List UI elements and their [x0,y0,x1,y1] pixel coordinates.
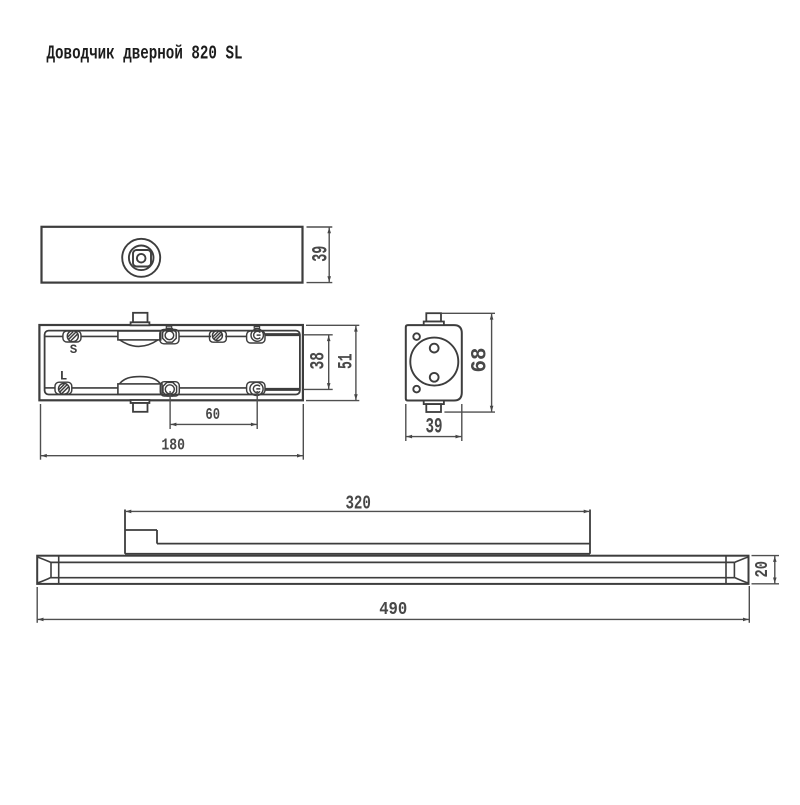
svg-text:180: 180 [161,435,185,454]
svg-text:39: 39 [309,246,334,262]
svg-text:320: 320 [345,492,371,514]
svg-text:490: 490 [379,600,407,620]
svg-text:60: 60 [205,405,220,424]
svg-text:20: 20 [753,561,773,578]
svg-text:68: 68 [468,348,493,373]
svg-text:39: 39 [426,415,443,440]
svg-text:Доводчик дверной 820 SL: Доводчик дверной 820 SL [47,43,243,65]
svg-text:S: S [70,343,78,357]
svg-text:38: 38 [308,352,331,370]
svg-text:L: L [60,369,68,384]
svg-text:51: 51 [336,354,359,370]
